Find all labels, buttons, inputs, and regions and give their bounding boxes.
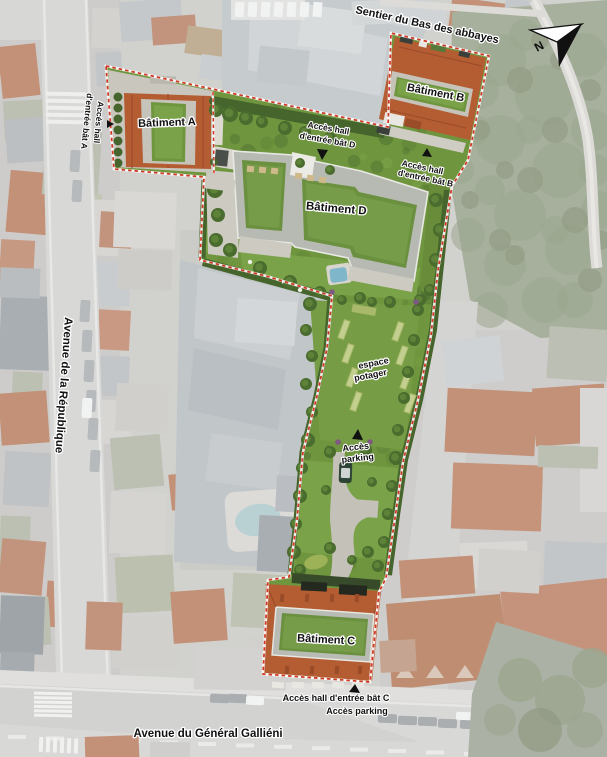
svg-text:Bâtiment A: Bâtiment A bbox=[138, 116, 196, 130]
svg-text:Avenue du Général Galliéni: Avenue du Général Galliéni bbox=[133, 728, 282, 740]
svg-text:Accès hall d'entrée bât C: Accès hall d'entrée bât C bbox=[283, 693, 390, 703]
svg-text:Accès parking: Accès parking bbox=[326, 706, 388, 716]
